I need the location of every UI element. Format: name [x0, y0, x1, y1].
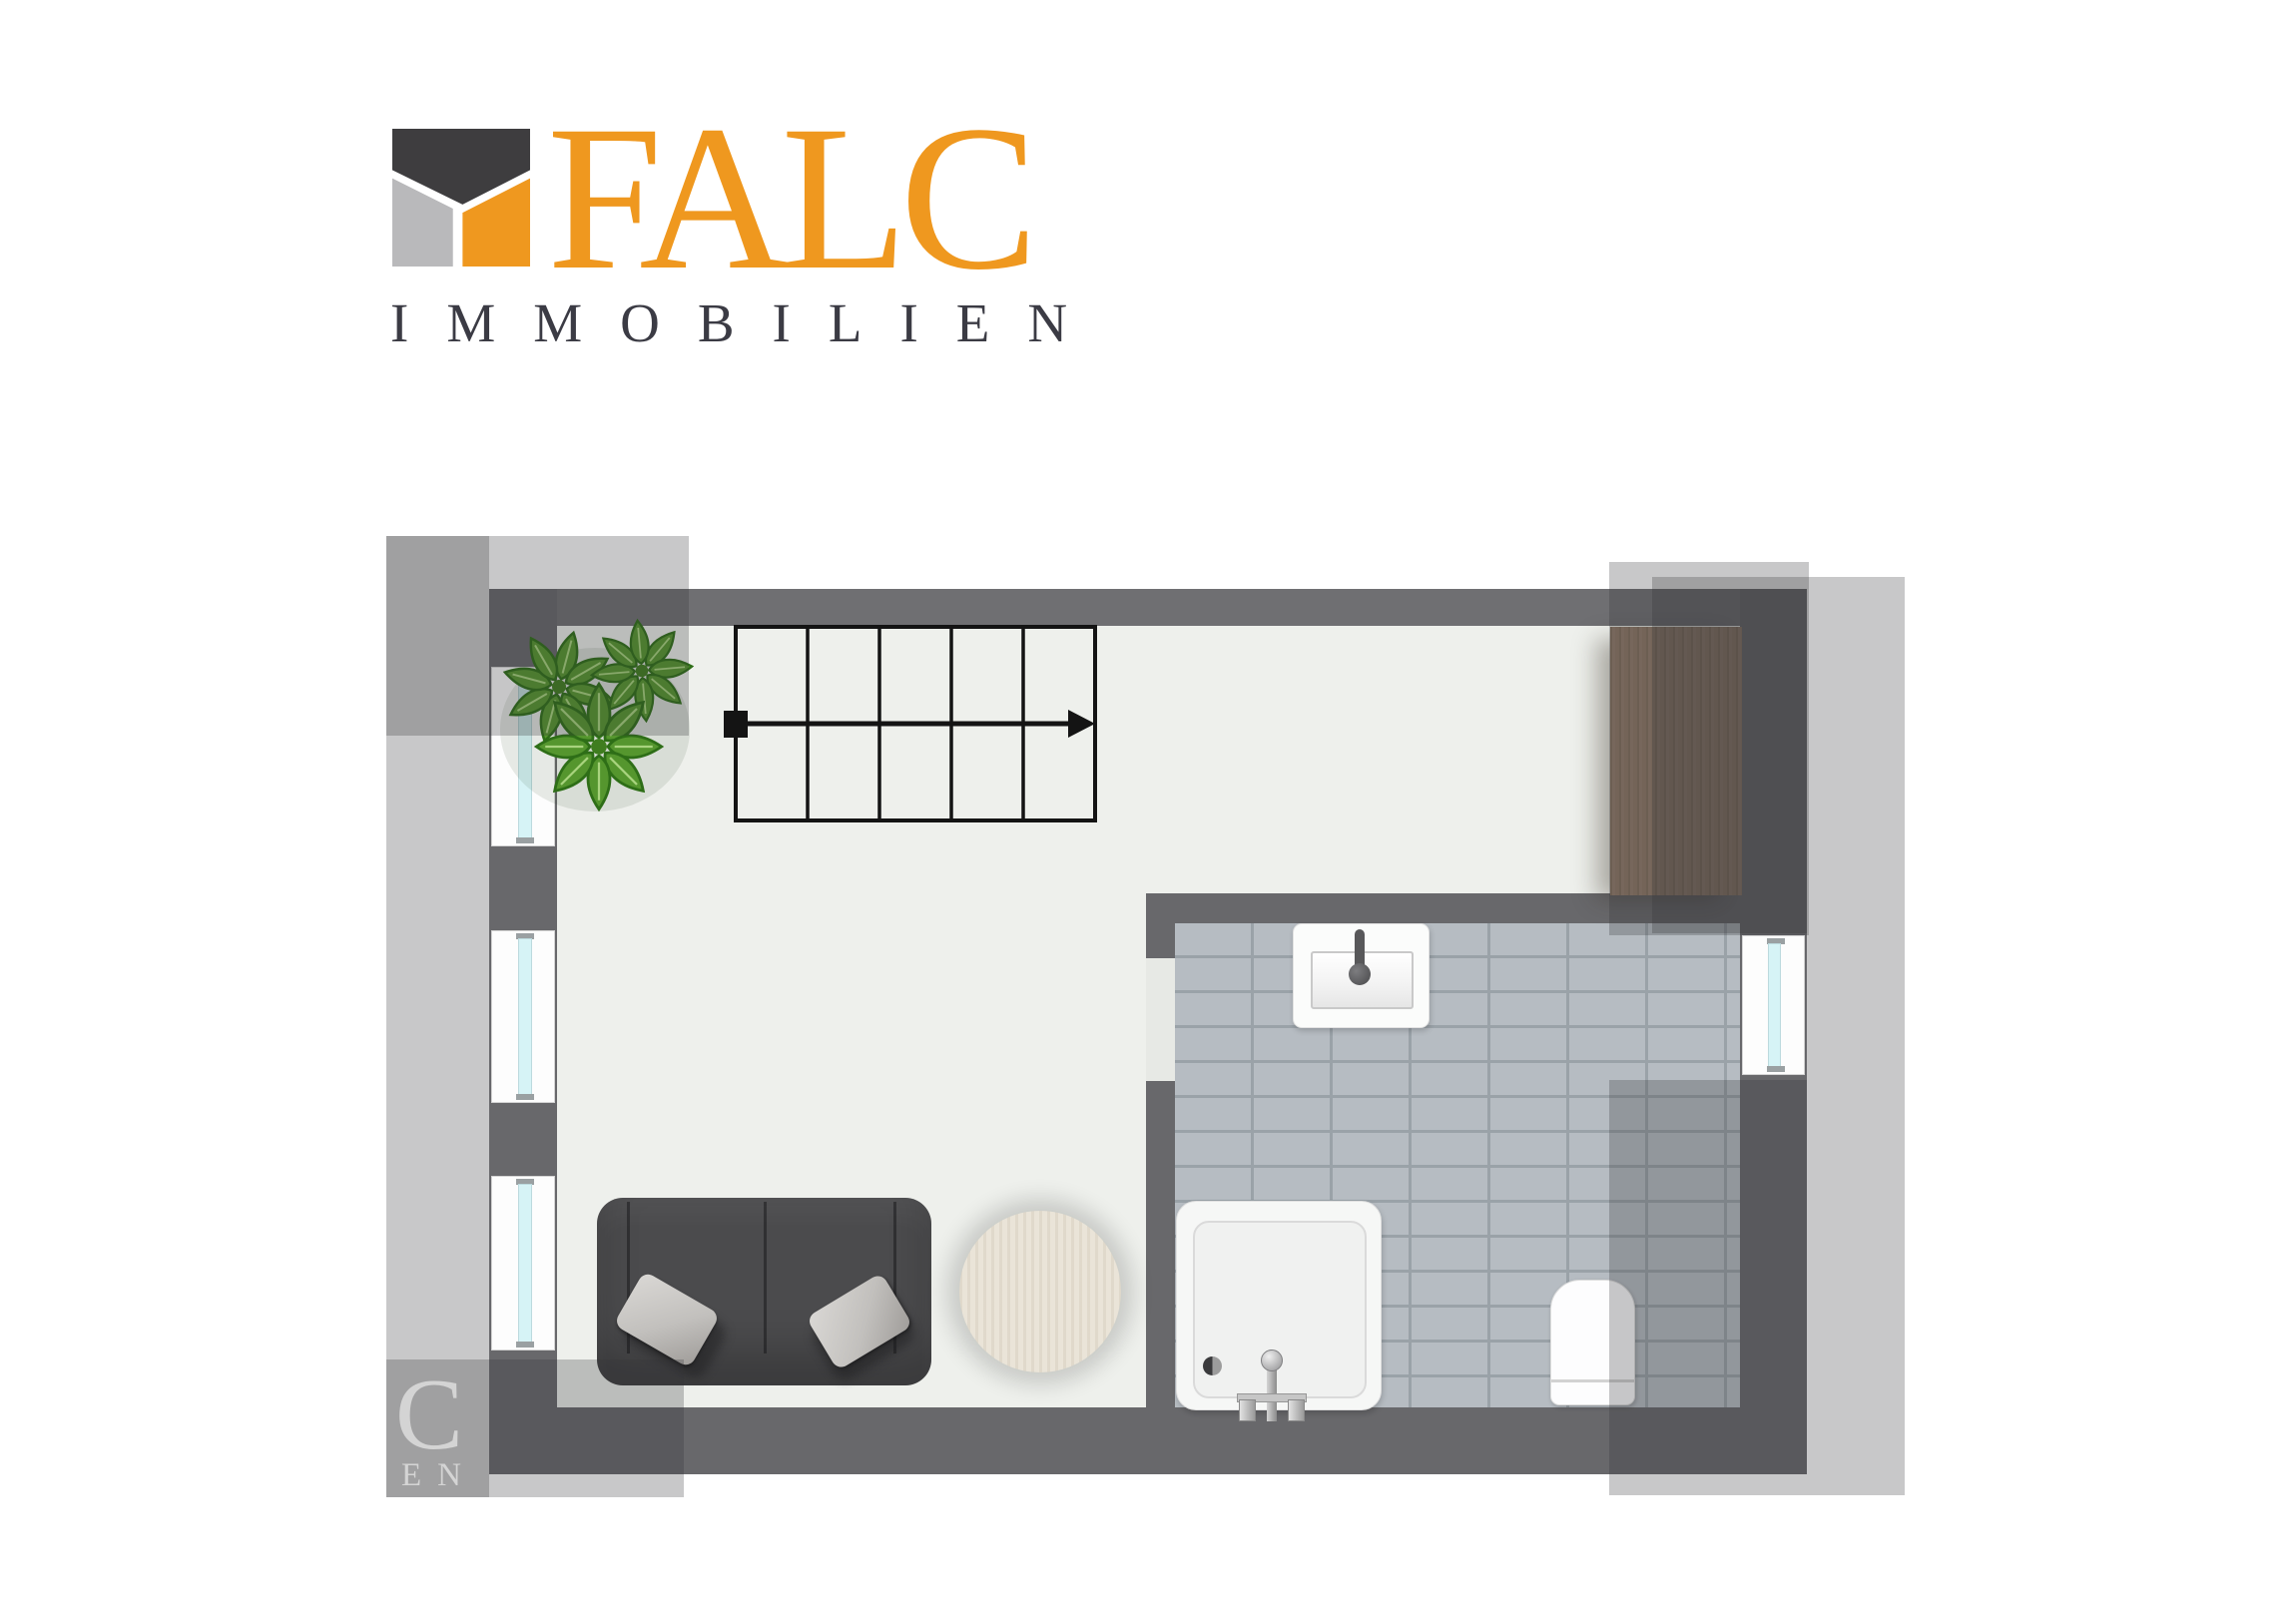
shower-faucet-handle: [1239, 1399, 1256, 1421]
side-table-icon: [959, 1211, 1121, 1372]
window-glass-icon: [518, 938, 532, 1097]
shower-icon: [1176, 1201, 1382, 1410]
sofa-seam: [764, 1202, 767, 1353]
window-left-2: [491, 930, 555, 1103]
watermark-block-bottom-right: [1609, 1080, 1905, 1495]
sofa-icon: [597, 1198, 931, 1385]
window-glass-icon: [518, 1184, 532, 1345]
stair-direction-arrow-icon: [1068, 710, 1095, 738]
house-logo-svg: [392, 128, 530, 268]
window-sill-icon: [516, 837, 534, 843]
window-glass-icon: [1768, 943, 1781, 1069]
window-sill-icon: [516, 1342, 534, 1348]
drain-icon: [1203, 1356, 1222, 1375]
bathroom-door-opening: [1146, 958, 1175, 1081]
shower-faucet-handle: [1288, 1399, 1305, 1421]
brand-subtitle: IMMOBILIEN: [390, 295, 1105, 350]
brand-name: FALC: [547, 94, 1030, 301]
window-sill-icon: [1767, 1066, 1785, 1072]
house-logo-icon: [392, 128, 530, 268]
bathroom-wall-left: [1146, 1081, 1175, 1407]
window-sill-icon: [516, 1094, 534, 1100]
watermark-block-left: [386, 536, 489, 1497]
window-left-3: [491, 1176, 555, 1351]
staircase-icon: [714, 615, 1108, 839]
watermark-letter: C: [395, 1364, 463, 1466]
floorplan-page: FALC IMMOBILIEN: [0, 0, 2296, 1623]
watermark-block-right-middle: [1807, 933, 1905, 1080]
washbasin-icon: [1293, 923, 1430, 1028]
bathroom-door-jamb: [1146, 923, 1175, 958]
watermark-block-top-right: [1652, 577, 1905, 933]
shower-faucet-icon: [1261, 1350, 1283, 1371]
watermark-letters: EN: [401, 1459, 477, 1492]
window-right: [1742, 935, 1805, 1075]
faucet-icon: [1349, 963, 1371, 985]
